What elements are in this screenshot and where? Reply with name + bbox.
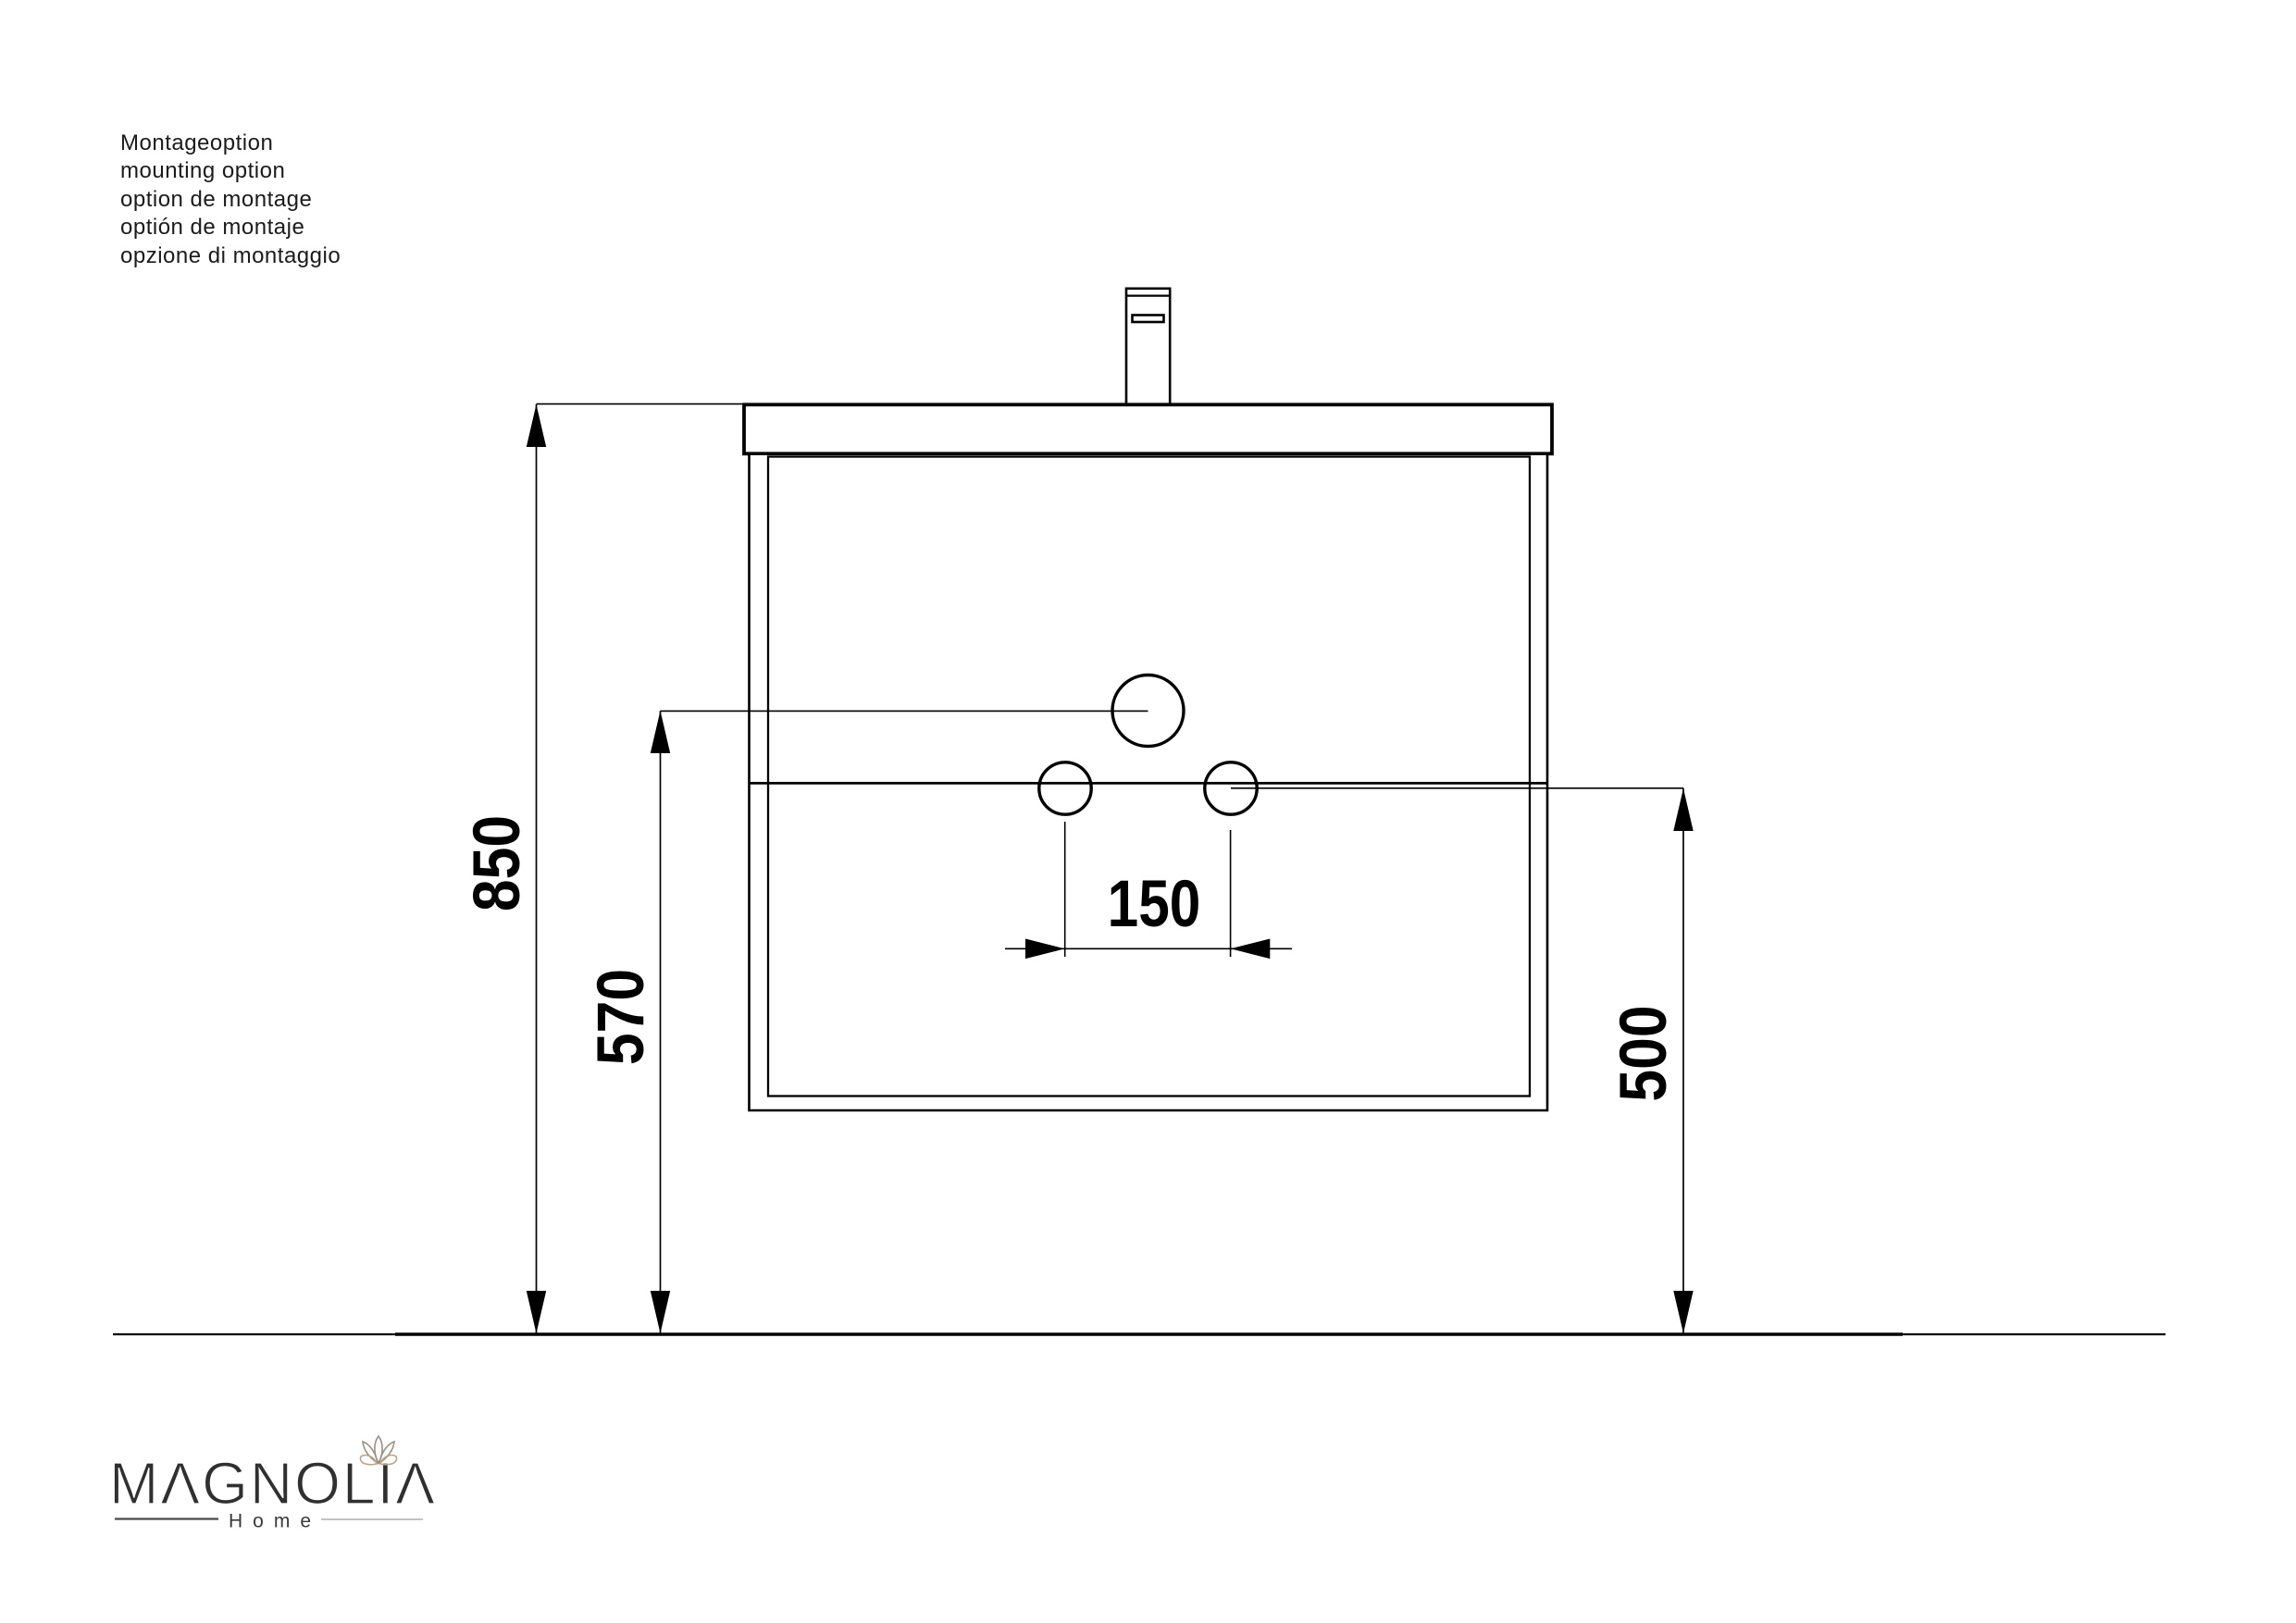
svg-text:850: 850 [460,815,534,911]
svg-text:mounting option: mounting option [120,158,285,183]
svg-text:opzione di montaggio: opzione di montaggio [120,243,341,268]
svg-text:150: 150 [1108,866,1201,940]
svg-text:optión de montaje: optión de montaje [120,215,304,240]
svg-text:Montageoption: Montageoption [120,130,273,155]
svg-text:Home: Home [229,1511,321,1532]
svg-text:570: 570 [584,969,658,1065]
svg-text:MΛGNOLIΛ: MΛGNOLIΛ [109,1450,437,1517]
svg-text:500: 500 [1607,1005,1681,1101]
svg-text:option de montage: option de montage [120,187,312,212]
